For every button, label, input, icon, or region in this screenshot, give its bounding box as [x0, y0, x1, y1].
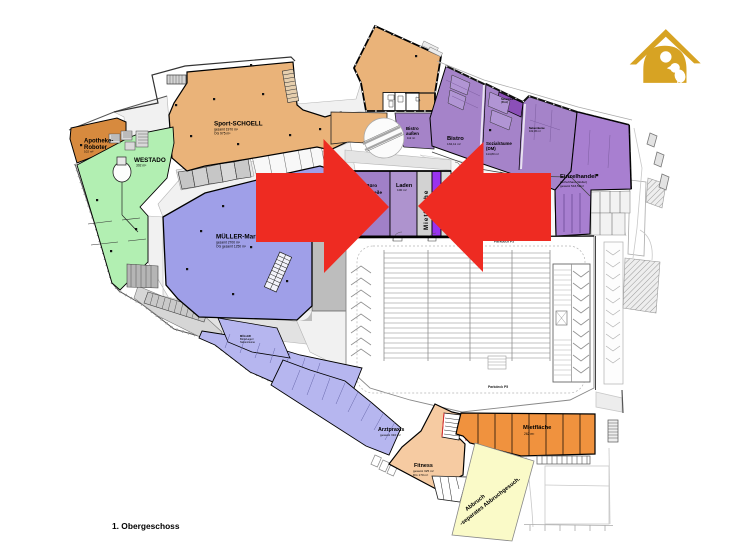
svg-text:392 m²: 392 m² — [136, 164, 147, 168]
svg-text:(DM): (DM) — [486, 146, 496, 151]
svg-text:262 m²: 262 m² — [524, 432, 535, 436]
svg-text:MÜLLER-Markt: MÜLLER-Markt — [216, 232, 262, 241]
svg-text:(Post): (Post) — [501, 101, 508, 104]
svg-text:112 m²: 112 m² — [407, 136, 415, 140]
svg-text:OG gesamt 1250 m²: OG gesamt 1250 m² — [216, 245, 247, 249]
svg-text:132,11 m²: 132,11 m² — [447, 142, 461, 146]
svg-text:gesamt 543,52m²: gesamt 543,52m² — [560, 184, 584, 188]
svg-text:Apotheke-: Apotheke- — [84, 139, 113, 145]
svg-text:Mietfläche: Mietfläche — [523, 425, 552, 431]
svg-text:100 m²: 100 m² — [397, 188, 407, 192]
svg-text:OG 975 m²: OG 975 m² — [214, 132, 231, 136]
svg-text:102 m²: 102 m² — [84, 150, 93, 154]
svg-text:gesamt 310 m²: gesamt 310 m² — [380, 433, 401, 437]
svg-text:1. Obergeschoss: 1. Obergeschoss — [112, 521, 180, 531]
svg-text:102,36 m²: 102,36 m² — [529, 129, 541, 133]
svg-text:Sport-SCHOELL: Sport-SCHOELL — [214, 121, 263, 128]
svg-text:DG 170 m²: DG 170 m² — [413, 473, 428, 477]
svg-text:114,80 m²: 114,80 m² — [486, 152, 499, 156]
svg-text:Parkdeck P5: Parkdeck P5 — [488, 385, 508, 389]
svg-text:außen: außen — [406, 131, 419, 136]
svg-text:Nebenräume: Nebenräume — [240, 340, 256, 344]
